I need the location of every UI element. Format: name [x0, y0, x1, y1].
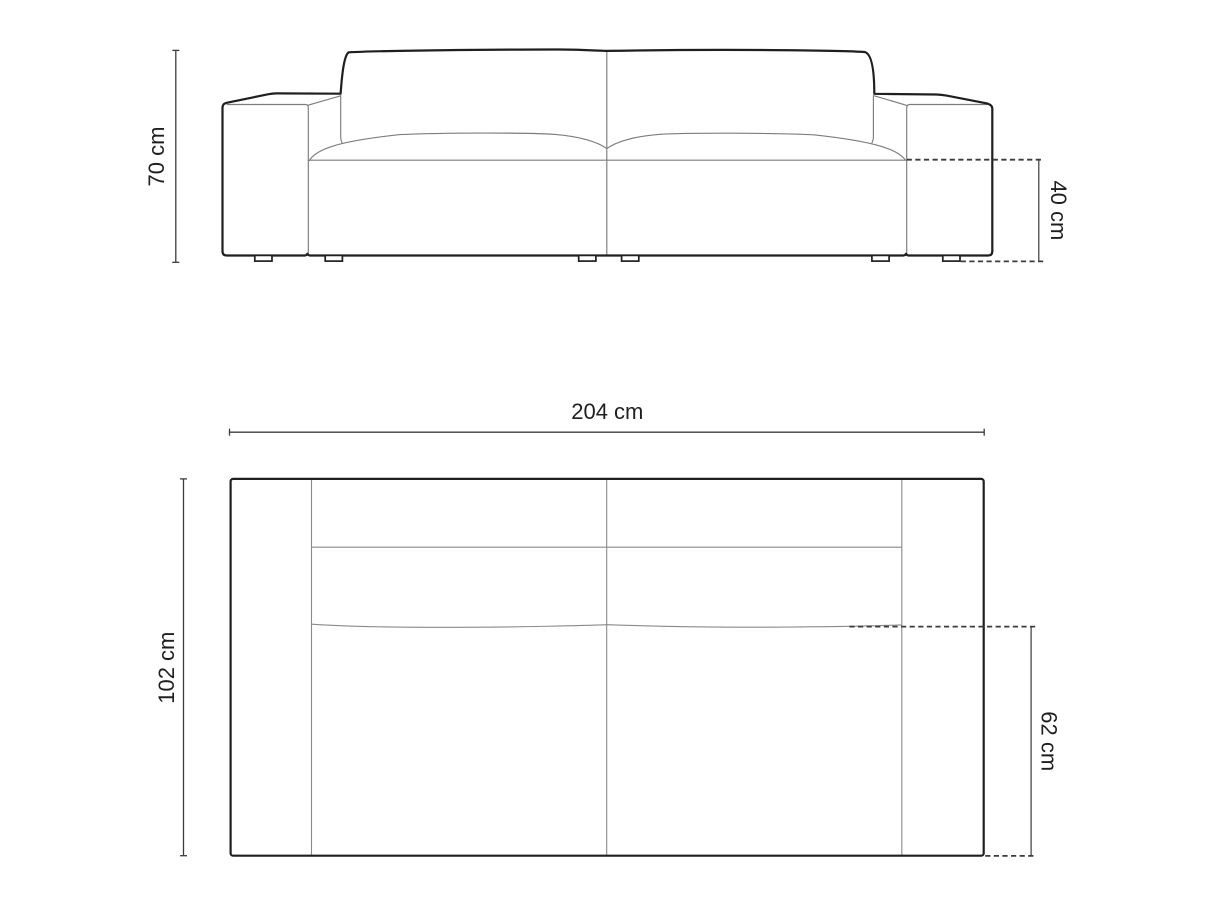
svg-text:102 cm: 102 cm: [154, 632, 179, 704]
svg-text:70 cm: 70 cm: [144, 127, 169, 187]
svg-text:62 cm: 62 cm: [1036, 711, 1061, 771]
svg-text:204 cm: 204 cm: [571, 399, 643, 424]
svg-text:40 cm: 40 cm: [1046, 180, 1071, 240]
